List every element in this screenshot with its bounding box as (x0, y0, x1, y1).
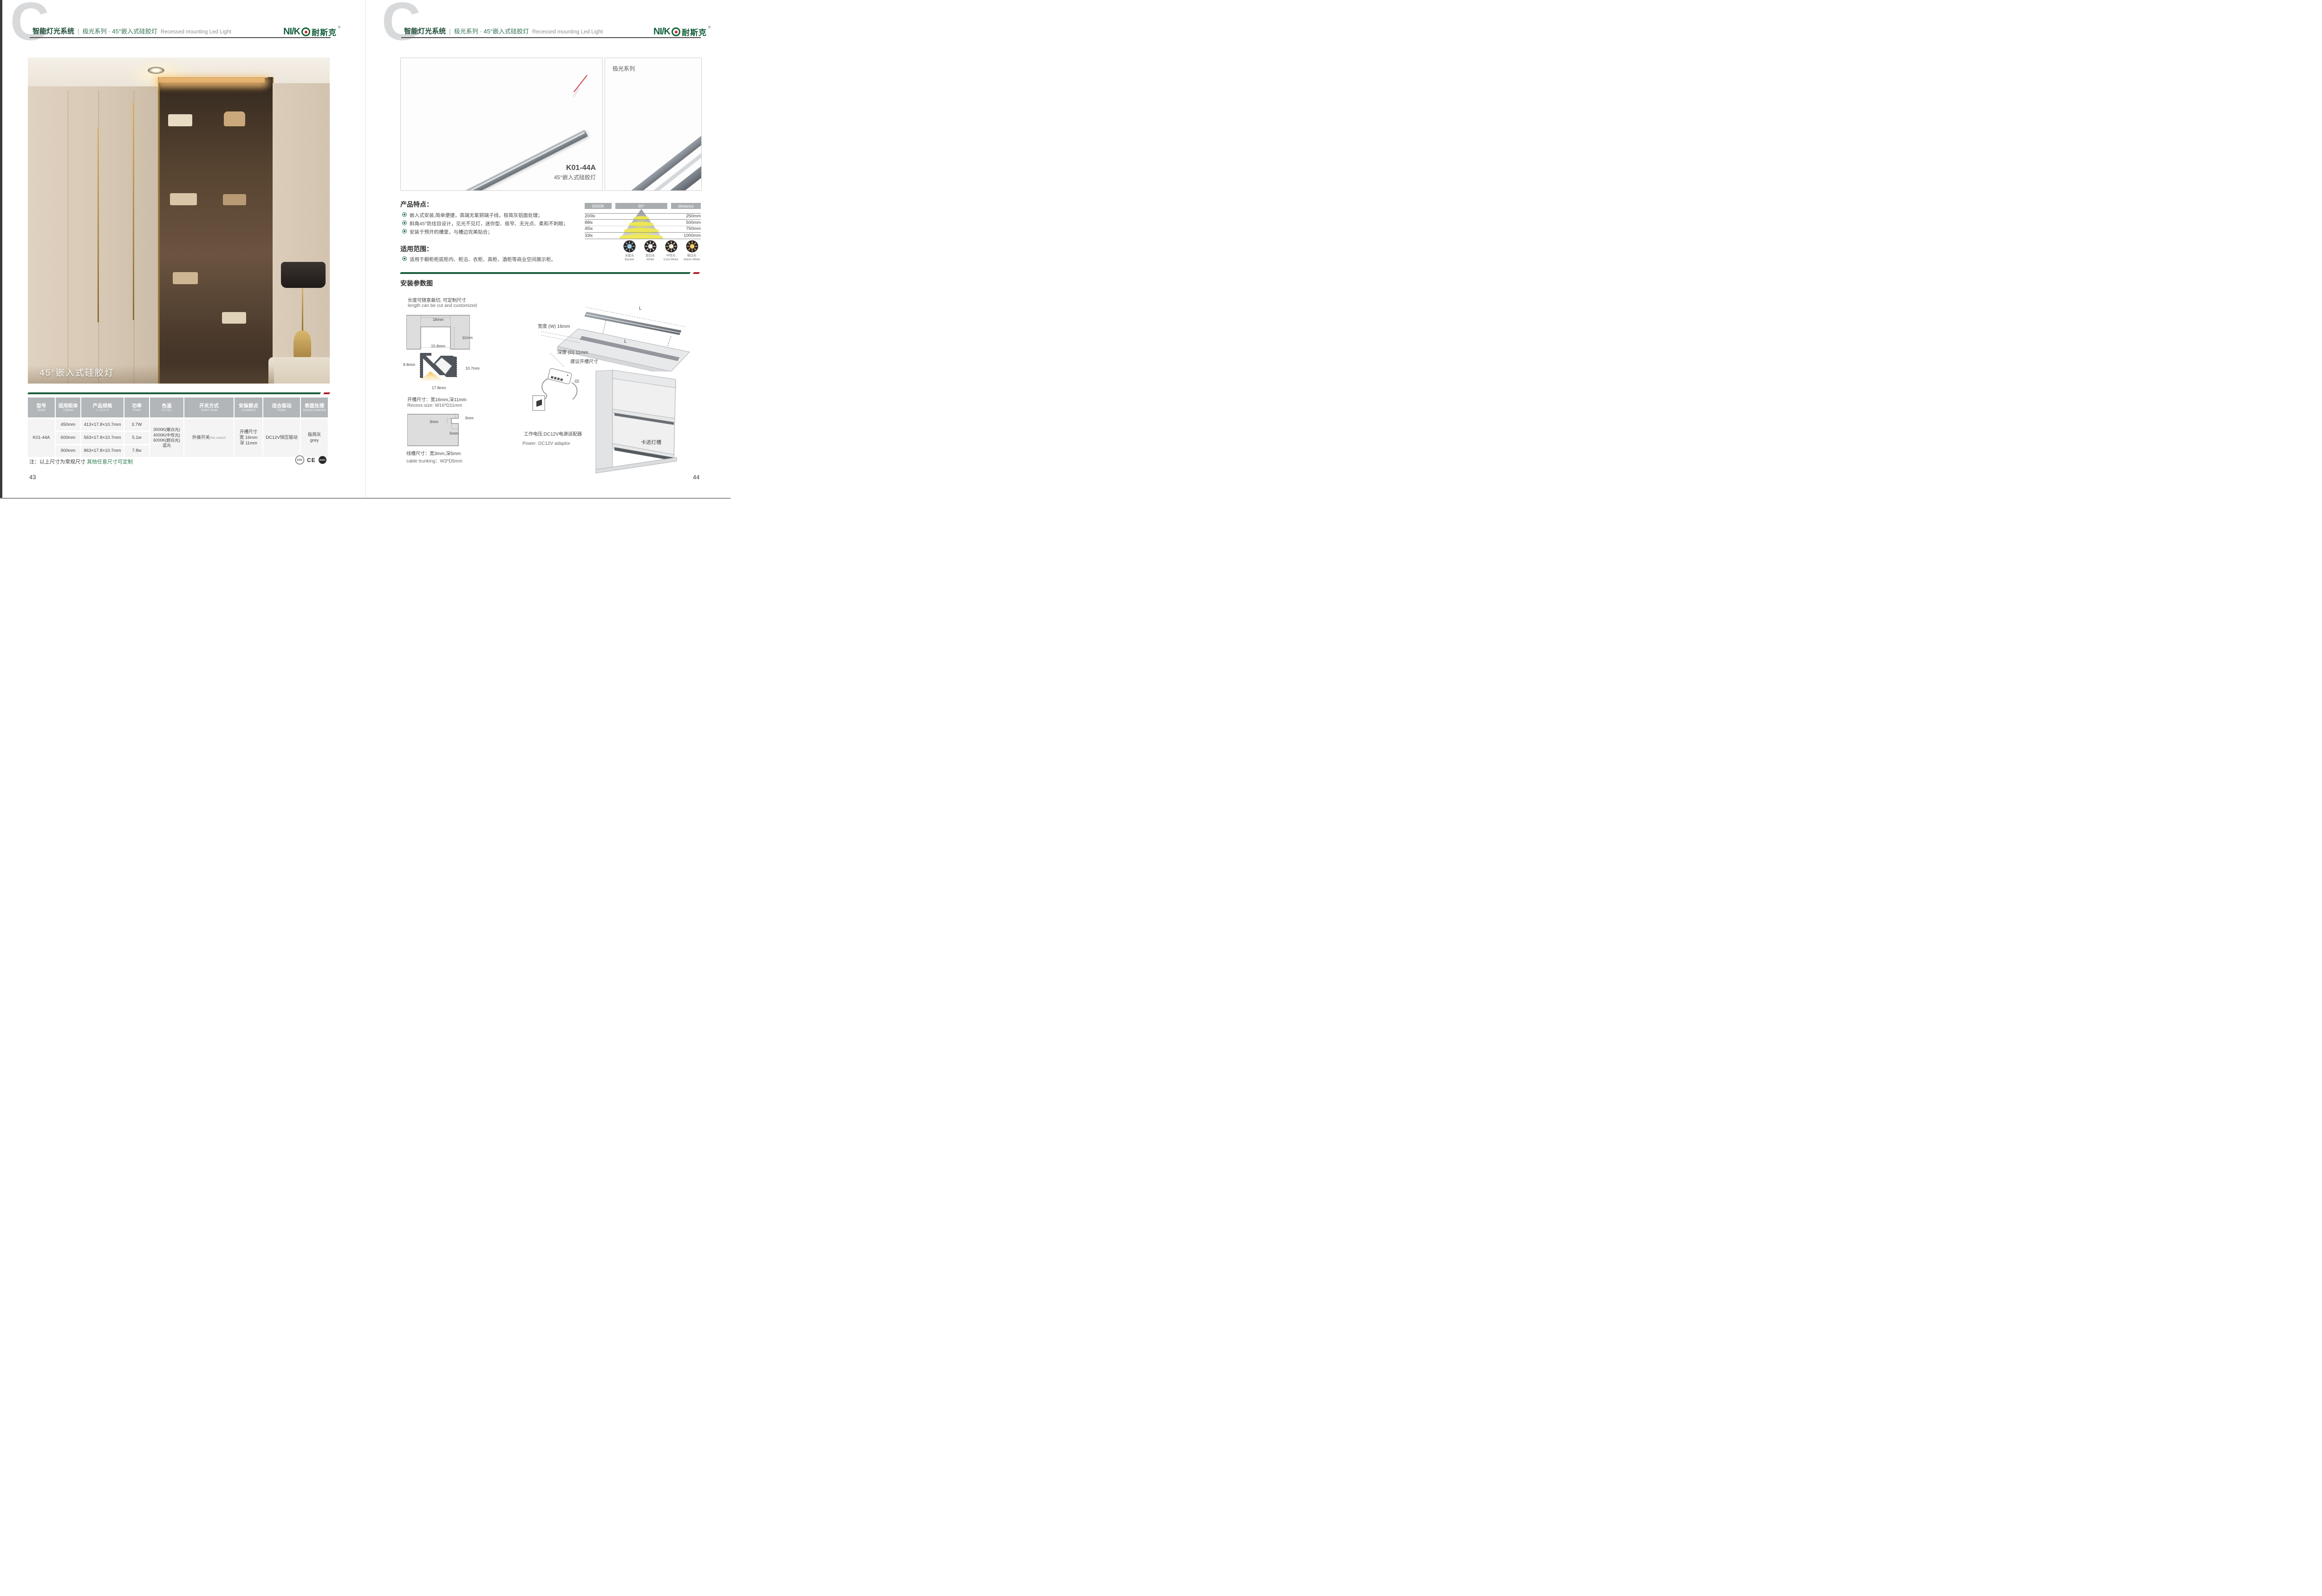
page-number-left: 43 (29, 474, 36, 481)
product-name: 45°嵌入式硅胶灯 (447, 173, 596, 181)
trunking-diagram (407, 414, 459, 446)
cct-option: 暖白光Warm White (682, 240, 702, 262)
lux-label: 45lx (585, 226, 593, 231)
bullet-icon (402, 221, 407, 225)
folded-clothes (223, 194, 246, 205)
col-cabinet: 适用柜体Cabinet (56, 397, 80, 417)
sun-icon (623, 240, 636, 253)
distance-label: 750mm (686, 226, 701, 231)
section-divider-red (693, 272, 700, 274)
left-edge-strip (0, 0, 2, 499)
spec-table-body: K01-44A 450mm 600mm 900mm 413×17.8×10.7m… (28, 419, 330, 457)
distance-label: 500mm (686, 220, 701, 225)
light-distance-chart: 6500K 90° distance 200 (585, 203, 701, 239)
cct-option: 冰蓝光Basket (620, 240, 639, 262)
catalog-spread: C 智能灯光系统 | 极光系列 · 45°嵌入式硅胶灯 Recessed mou… (0, 0, 731, 499)
chart-angle-box: 90° (615, 203, 667, 209)
cell-install: 开槽尺寸 宽 16mm 深 11mm (235, 419, 262, 457)
logo-bullseye-icon (301, 27, 310, 36)
folded-clothes (222, 312, 246, 324)
red-wire (574, 75, 587, 92)
cell-cct: 3000K(暖白光) 4000K(中性光) 6000K(超白光) 蓝光 (150, 419, 183, 457)
chart-distance-box: distance (671, 203, 701, 209)
trunk-5mm: 5mm (450, 431, 458, 436)
bullet-icon (402, 256, 407, 261)
chart-cct-box: 6500K (585, 203, 612, 209)
bottom-edge (0, 498, 731, 499)
cell-surface: 极简灰 grey (301, 419, 328, 457)
handbag (224, 111, 245, 126)
trunk-3mm-left: 3mm (430, 419, 438, 424)
section-divider-green (27, 392, 321, 394)
cell-model: K01-44A (28, 419, 55, 457)
folded-linens (168, 114, 192, 126)
system-title: 智能灯光系统 (33, 26, 74, 36)
downlight-icon (148, 67, 164, 74)
decorative-c-watermark: C (10, 0, 49, 48)
bullet-icon (402, 229, 407, 234)
dim-17-8mm: 17.8mm (420, 385, 457, 390)
cct-options: 冰蓝光Basket 超白光White (620, 240, 702, 262)
folded-clothes (170, 193, 197, 205)
rohs-icon: RoHS (319, 456, 326, 464)
cell-spec: 413×17.8×10.7mm 563×17.8×10.7mm 863×17.8… (81, 419, 124, 457)
glass-door-frame (159, 83, 160, 384)
trunk-size-en: cable trunking：W3*D5mm (406, 457, 463, 464)
series-subtitle-en: Recessed mounting Led Light (161, 29, 231, 35)
col-model: 型号Model (28, 397, 55, 417)
label-l-top: L (639, 306, 642, 311)
brass-handle (98, 127, 99, 322)
cell-power: 3.7W 5.1w 7.8w (124, 419, 149, 457)
profile-section-diagram (417, 352, 463, 381)
install-title: 安装参数图 (400, 279, 433, 288)
sun-icon (644, 240, 657, 253)
col-switch: 开关方式Switch mode (184, 397, 234, 417)
cut-note-en: length can be cut and customized (408, 303, 477, 308)
label-width: 宽度 (W) 16mm (538, 322, 570, 329)
glass-display-cabinet (158, 77, 274, 384)
logo-text-cn: 耐斯克 (312, 26, 337, 38)
photo-caption: 45°嵌入式硅胶灯 (39, 366, 114, 378)
cell-drive: DC12V恒压驱动 (263, 419, 300, 457)
scope-item: 适用于橱柜柜底柜内、柜沿、衣柜、高柜、酒柜等商业空间展示柜。 (402, 256, 556, 263)
ce-icon: CE (307, 457, 316, 463)
scope-title: 适用范围： (400, 244, 433, 254)
brand-logo: NI/K 耐斯克 ® (283, 26, 340, 38)
adaptor-diagram (531, 367, 587, 416)
table-lamp-shade (281, 262, 326, 288)
logo-bullseye-icon (672, 27, 680, 36)
col-drive: 适合驱动Power (263, 397, 300, 417)
cell-switch: 外接开关/No switch (184, 419, 234, 457)
section-divider-red (323, 392, 330, 394)
label-depth: 深度 (D) 11mm (557, 348, 588, 355)
dim-10-7mm: 10.7mm (465, 366, 480, 371)
col-surface: 表面处理Surface treatment (301, 397, 328, 417)
trunk-size-cn: 线槽尺寸：宽3mm,深5mm (406, 449, 461, 456)
registered-mark: ® (338, 26, 340, 29)
power-note-en: Power: DC12V adaptor (522, 441, 570, 446)
sun-icon (665, 240, 678, 253)
led-profile-bar (404, 130, 588, 191)
product-photo-box: K01-44A 45°嵌入式硅胶灯 (400, 58, 603, 191)
page-header: 智能灯光系统 | 极光系列 · 45°嵌入式硅胶灯 Recessed mount… (404, 26, 603, 36)
series-photo-box: 极光系列 (605, 58, 702, 191)
page-header: 智能灯光系统 | 极光系列 · 45°嵌入式硅胶灯 Recessed mount… (33, 26, 231, 36)
header-separator: | (78, 27, 79, 35)
logo-text-en: NI/K (283, 26, 300, 37)
cct-option: 中性光Cool White (661, 240, 681, 262)
board-diagram (532, 302, 701, 371)
certification-icons: CCC CE RoHS (295, 456, 326, 464)
dim-16mm: 16mm (420, 317, 456, 322)
brand-logo: NI/K 耐斯克 ® (653, 26, 711, 38)
section-divider-green (400, 272, 691, 274)
dim-9-8mm: 9.8mm (398, 362, 415, 367)
page-number-right: 44 (693, 474, 699, 481)
decorative-c-watermark: C (382, 0, 421, 48)
dimension-note: 注：以上尺寸为常规尺寸 其他任意尺寸可定制 (29, 458, 133, 465)
series-title: 极光系列 · 45°嵌入式硅胶灯 (83, 26, 157, 35)
feature-item: 安装于预开的槽里，与槽边完美贴合； (402, 228, 493, 235)
col-power: 功率Power (124, 397, 149, 417)
lux-label: 88lx (585, 220, 593, 225)
col-cct: 色温CCT(K) (150, 397, 183, 417)
product-model: K01-44A (447, 164, 596, 172)
cell-cabinet: 450mm 600mm 900mm (56, 419, 80, 457)
sun-icon (686, 240, 698, 253)
brass-handle (133, 102, 134, 320)
feature-item: 斜角45°防炫目设计，见光不见灯，迷你型、极窄、无光点、柔和不刺眼； (402, 220, 568, 227)
features-title: 产品特点： (400, 200, 433, 209)
trunk-3mm-top: 3mm (465, 416, 474, 420)
recess-size-en: Recess size: W16*D11mm (407, 403, 462, 408)
col-install: 安装要点Installation (235, 397, 262, 417)
lifestyle-photo: 45°嵌入式硅胶灯 (28, 58, 330, 384)
cabinet-diagram (582, 364, 700, 475)
folded-clothes (173, 272, 198, 284)
clip-label: 卡进灯槽 (641, 438, 661, 446)
power-note-cn: 工作电压:DC12V电源适配器 (524, 430, 582, 437)
recess-size-cn: 开槽尺寸：宽16mm,深11mm (407, 396, 467, 403)
spec-table-header: 型号Model 适用柜体Cabinet 产品规格L x D x H 功率Powe… (28, 397, 330, 417)
label-l-board: L (624, 339, 627, 344)
series-label: 极光系列 (613, 65, 635, 72)
bed-corner (268, 357, 330, 384)
cct-option: 超白光White (640, 240, 660, 262)
bullet-icon (402, 212, 407, 217)
ccc-icon: CCC (295, 456, 304, 464)
dim-11mm: 11mm (462, 335, 473, 340)
table-lamp-stem (302, 288, 303, 332)
cut-note-cn: 长度可随意裁切, 可定制尺寸 (408, 296, 466, 303)
lux-label: 33lx (585, 233, 593, 238)
distance-label: 250mm (686, 214, 701, 219)
col-spec: 产品规格L x D x H (81, 397, 124, 417)
distance-label: 1000mm (684, 233, 701, 238)
header-rule (30, 37, 331, 38)
feature-item: 嵌入式安装,简单便捷，高端无氧铜端子线，极简灰铝面处理； (402, 212, 542, 219)
page-gutter (365, 0, 366, 499)
lux-label: 200lx (585, 214, 595, 219)
header-rule (401, 37, 701, 38)
lit-shelf (162, 77, 267, 78)
dim-15-8mm: 15.8mm (420, 344, 456, 348)
product-caption: K01-44A 45°嵌入式硅胶灯 (447, 164, 596, 181)
